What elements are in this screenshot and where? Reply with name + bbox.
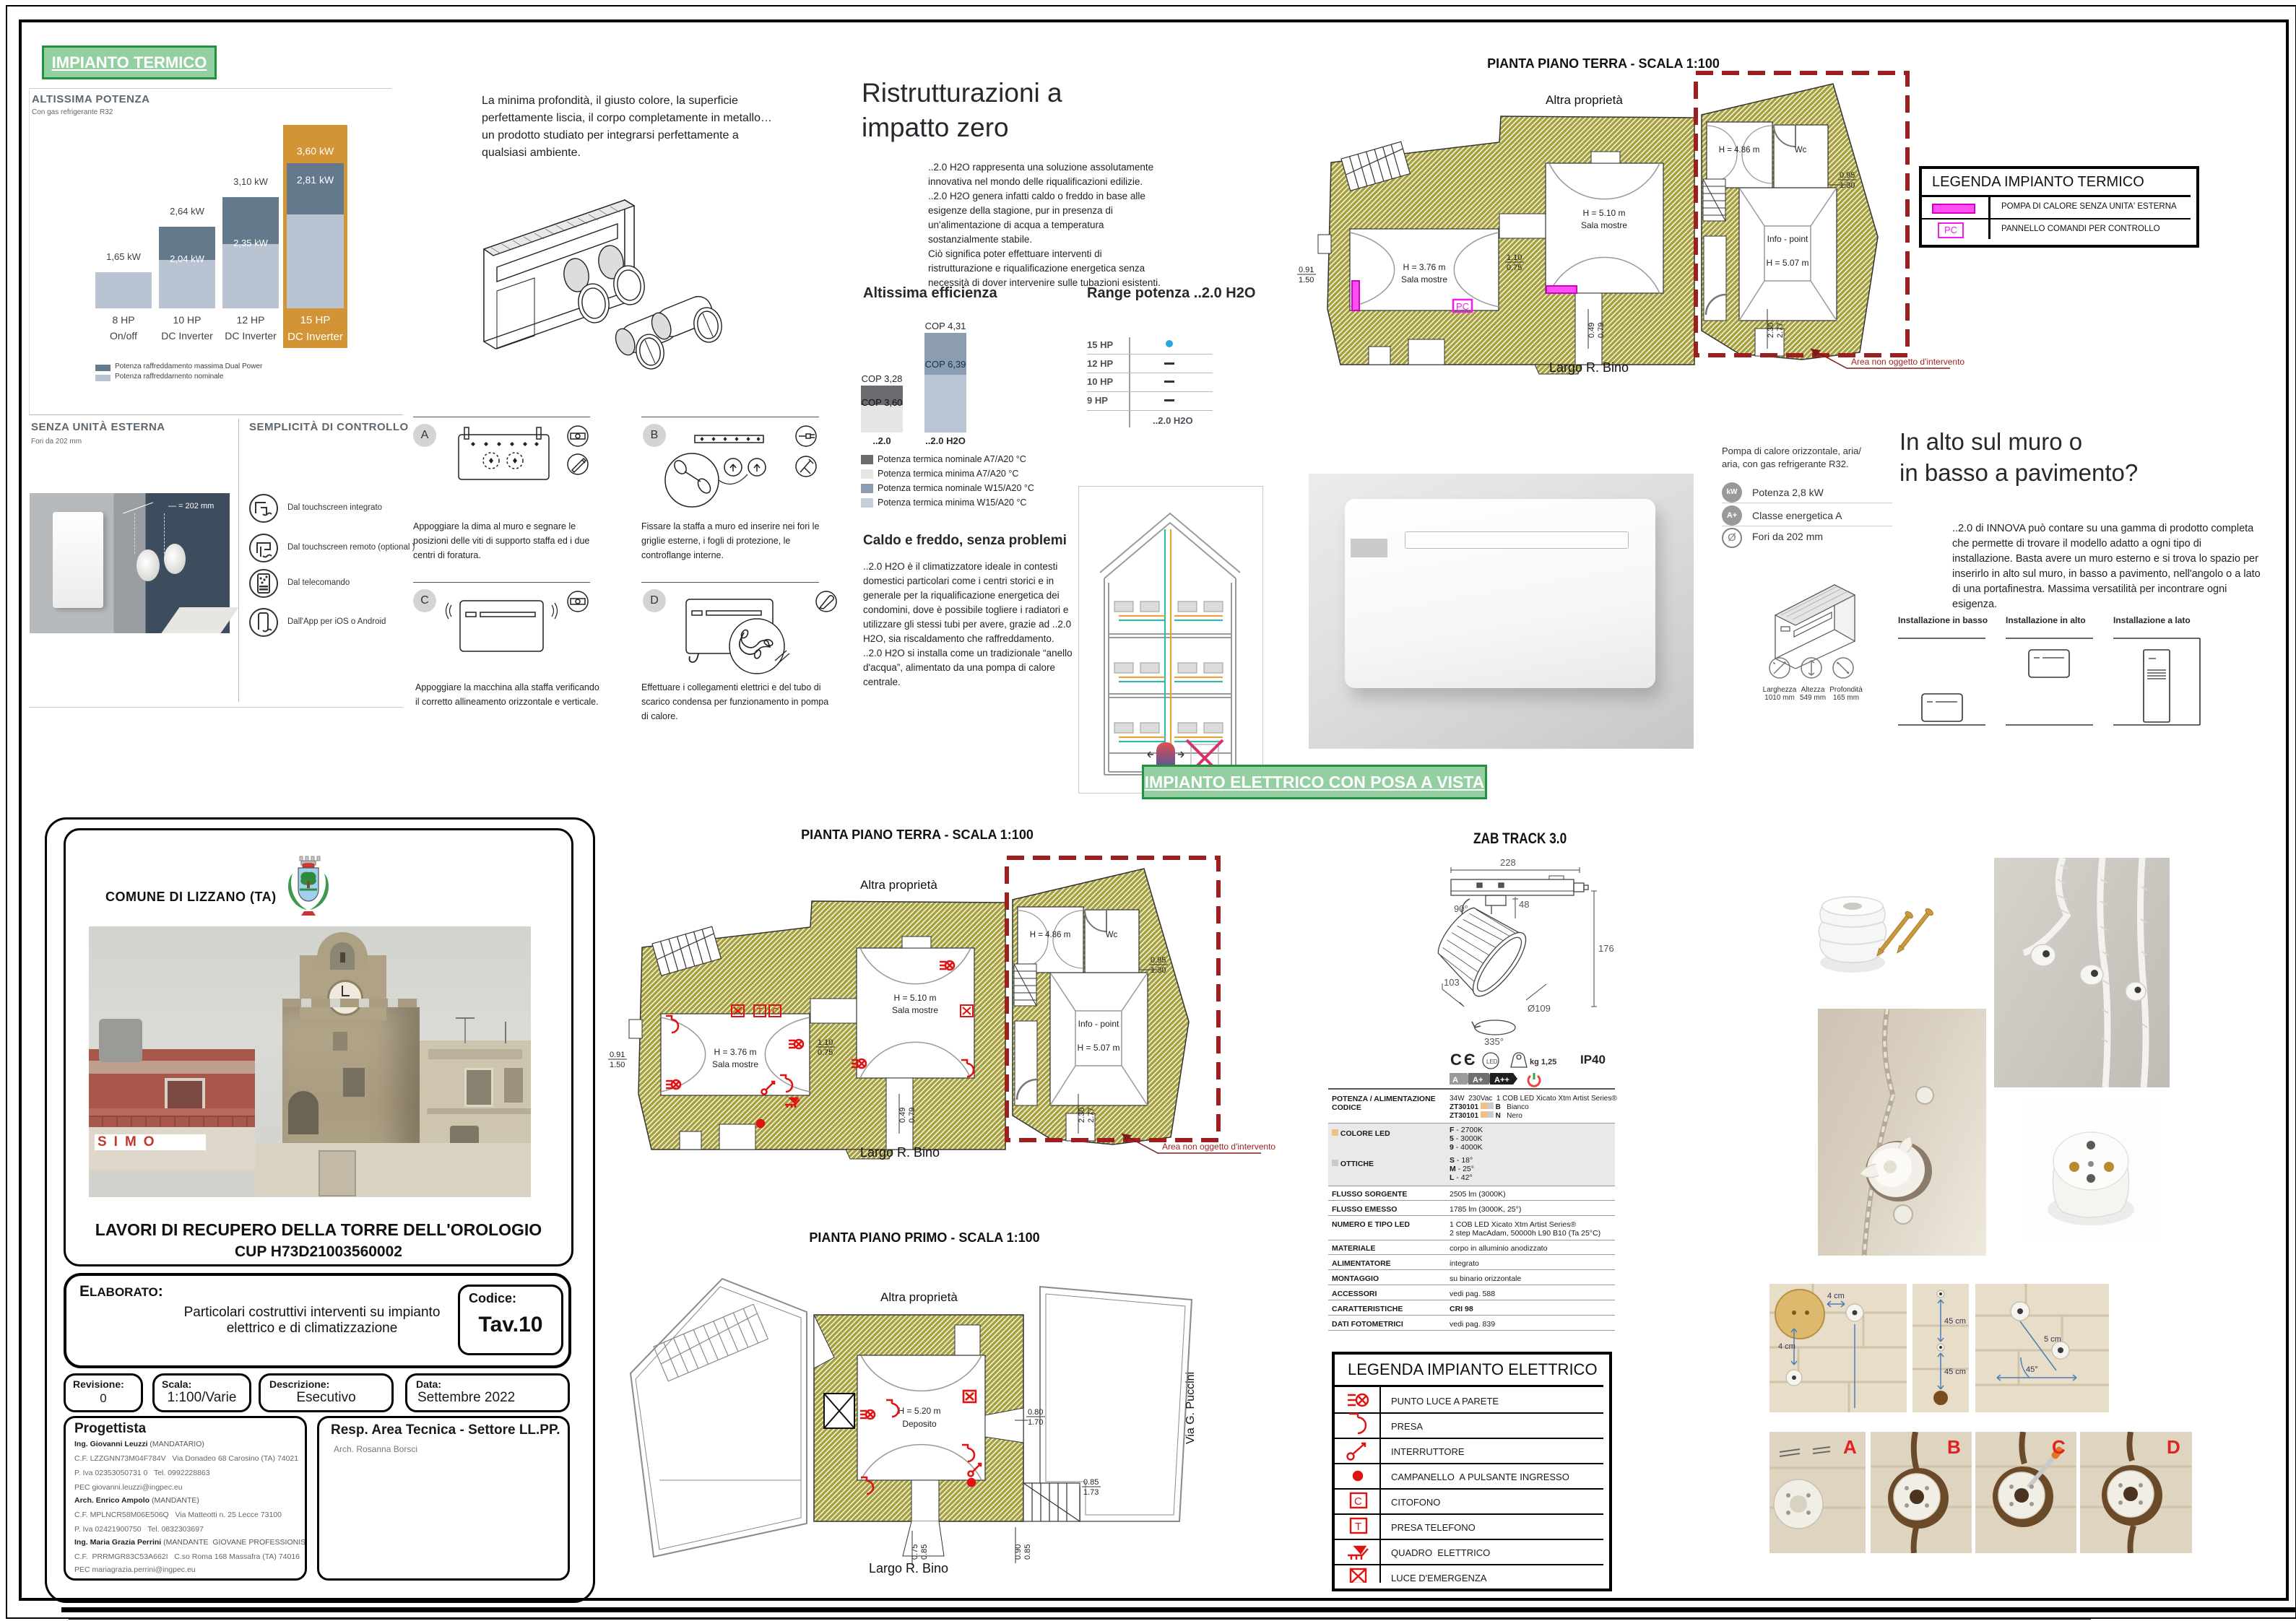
svg-text:0.80: 0.80 [1028, 1408, 1043, 1417]
svg-text:0.91: 0.91 [1299, 266, 1314, 274]
svg-text:1.70: 1.70 [1028, 1418, 1043, 1427]
svg-text:Altra proprietà: Altra proprietà [1546, 93, 1623, 107]
svg-text:H = 5.20 m: H = 5.20 m [898, 1406, 940, 1416]
svg-text:1.30: 1.30 [1151, 966, 1166, 975]
svg-text:H = 4.86 m: H = 4.86 m [1719, 146, 1760, 155]
svg-text:0.75: 0.75 [1507, 264, 1522, 272]
svg-text:176: 176 [1598, 943, 1614, 954]
svg-text:D: D [2167, 1436, 2180, 1458]
svg-text:4 cm: 4 cm [1778, 1342, 1795, 1351]
svg-text:Sala mostre: Sala mostre [1581, 220, 1627, 230]
svg-text:45°: 45° [2026, 1365, 2038, 1374]
svg-text:0.85: 0.85 [920, 1544, 929, 1560]
svg-text:H = 5.07 m: H = 5.07 m [1766, 258, 1808, 268]
svg-text:H = 5.10 m: H = 5.10 m [893, 993, 936, 1003]
svg-text:H = 5.07 m: H = 5.07 m [1077, 1043, 1119, 1053]
svg-text:2.30: 2.30 [1078, 1108, 1086, 1123]
svg-text:1.30: 1.30 [1840, 181, 1855, 190]
svg-text:2.30: 2.30 [1767, 323, 1775, 338]
svg-text:0.75: 0.75 [818, 1048, 833, 1057]
svg-text:0.49: 0.49 [898, 1108, 907, 1123]
svg-text:Info - point: Info - point [1767, 234, 1808, 244]
svg-text:LED: LED [1486, 1059, 1498, 1065]
svg-text:C: C [772, 1006, 779, 1017]
svg-text:Area non oggetto d'intervento: Area non oggetto d'intervento [1851, 357, 1964, 367]
svg-text:0.85: 0.85 [1083, 1478, 1099, 1487]
svg-text:0.49: 0.49 [1587, 323, 1596, 338]
svg-text:5 cm: 5 cm [2044, 1335, 2061, 1344]
svg-text:103: 103 [1444, 977, 1460, 988]
svg-text:A: A [1452, 1076, 1458, 1085]
svg-text:H = 4.86 m: H = 4.86 m [1030, 931, 1071, 939]
svg-text:Altra proprietà: Altra proprietà [860, 878, 937, 892]
svg-text:Area non oggetto d'intervento: Area non oggetto d'intervento [1162, 1142, 1275, 1152]
svg-text:0.79: 0.79 [908, 1108, 917, 1123]
svg-text:Wc: Wc [1795, 146, 1807, 155]
svg-text:45 cm: 45 cm [1944, 1317, 1966, 1326]
svg-text:0.85: 0.85 [1023, 1544, 1032, 1560]
svg-text:0.91: 0.91 [610, 1051, 625, 1059]
svg-text:H = 3.76 m: H = 3.76 m [1403, 262, 1445, 272]
svg-text:Largo R. Bino: Largo R. Bino [869, 1561, 948, 1576]
svg-text:H = 5.10 m: H = 5.10 m [1582, 208, 1625, 218]
svg-text:Via G. Puccini: Via G. Puccini [1184, 1372, 1197, 1444]
svg-text:T: T [757, 1006, 763, 1017]
svg-text:PC: PC [1456, 301, 1469, 312]
svg-text:Altra proprietà: Altra proprietà [880, 1290, 958, 1304]
svg-text:Sala mostre: Sala mostre [1401, 274, 1447, 284]
svg-text:1.10: 1.10 [1507, 253, 1522, 262]
svg-text:Info - point: Info - point [1078, 1019, 1119, 1029]
svg-text:0.95: 0.95 [1840, 171, 1855, 180]
svg-text:228: 228 [1500, 857, 1516, 868]
svg-text:kg 1,25: kg 1,25 [1530, 1058, 1556, 1066]
svg-text:2.77: 2.77 [1776, 323, 1785, 338]
svg-text:A: A [1843, 1436, 1857, 1458]
svg-text:4 cm: 4 cm [1827, 1292, 1845, 1300]
svg-text:1.50: 1.50 [1299, 276, 1314, 284]
svg-text:Deposito: Deposito [902, 1419, 937, 1429]
svg-text:335°: 335° [1484, 1036, 1504, 1047]
svg-text:Sala mostre: Sala mostre [712, 1059, 758, 1069]
svg-text:Ø109: Ø109 [1528, 1003, 1551, 1014]
svg-text:48: 48 [1519, 899, 1529, 910]
svg-text:T: T [1355, 1521, 1361, 1533]
svg-text:1.73: 1.73 [1083, 1488, 1099, 1497]
svg-text:1.10: 1.10 [818, 1038, 833, 1047]
svg-text:1.50: 1.50 [610, 1061, 625, 1069]
svg-text:0.95: 0.95 [1151, 956, 1166, 965]
svg-text:B: B [1947, 1436, 1961, 1458]
svg-text:H = 3.76 m: H = 3.76 m [714, 1047, 756, 1057]
svg-text:Largo R. Bino: Largo R. Bino [1549, 360, 1629, 375]
svg-text:Sala mostre: Sala mostre [892, 1005, 938, 1015]
svg-text:45 cm: 45 cm [1944, 1368, 1966, 1376]
svg-text:C: C [1354, 1495, 1362, 1508]
svg-text:2.77: 2.77 [1087, 1108, 1096, 1123]
svg-text:Wc: Wc [1106, 931, 1118, 939]
svg-text:0.79: 0.79 [1597, 323, 1606, 338]
svg-text:A++: A++ [1494, 1076, 1509, 1085]
svg-text:C: C [2052, 1436, 2066, 1458]
svg-text:A+: A+ [1473, 1076, 1483, 1085]
svg-text:Largo R. Bino: Largo R. Bino [860, 1145, 940, 1160]
